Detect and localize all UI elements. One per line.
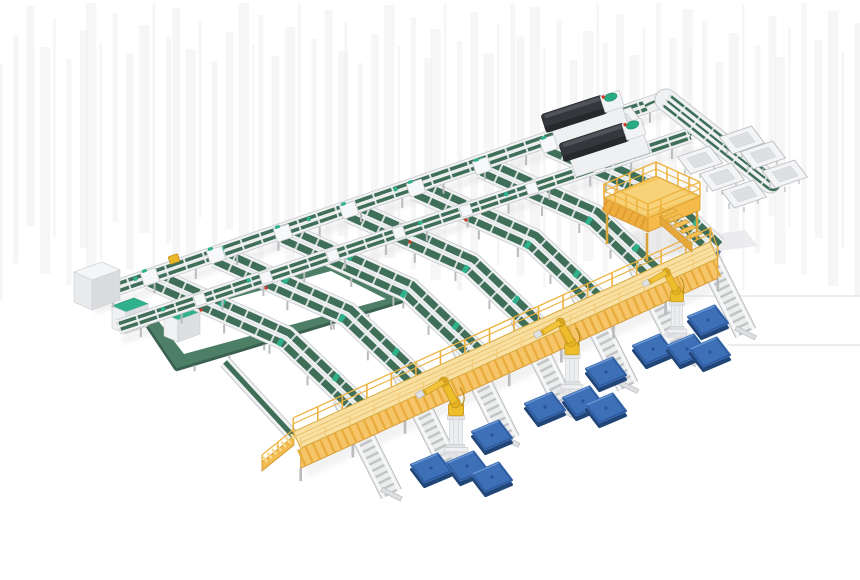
loop-to-walkway-connector [225,362,293,436]
facility-3d-render [0,0,860,580]
render-canvas [0,0,860,580]
